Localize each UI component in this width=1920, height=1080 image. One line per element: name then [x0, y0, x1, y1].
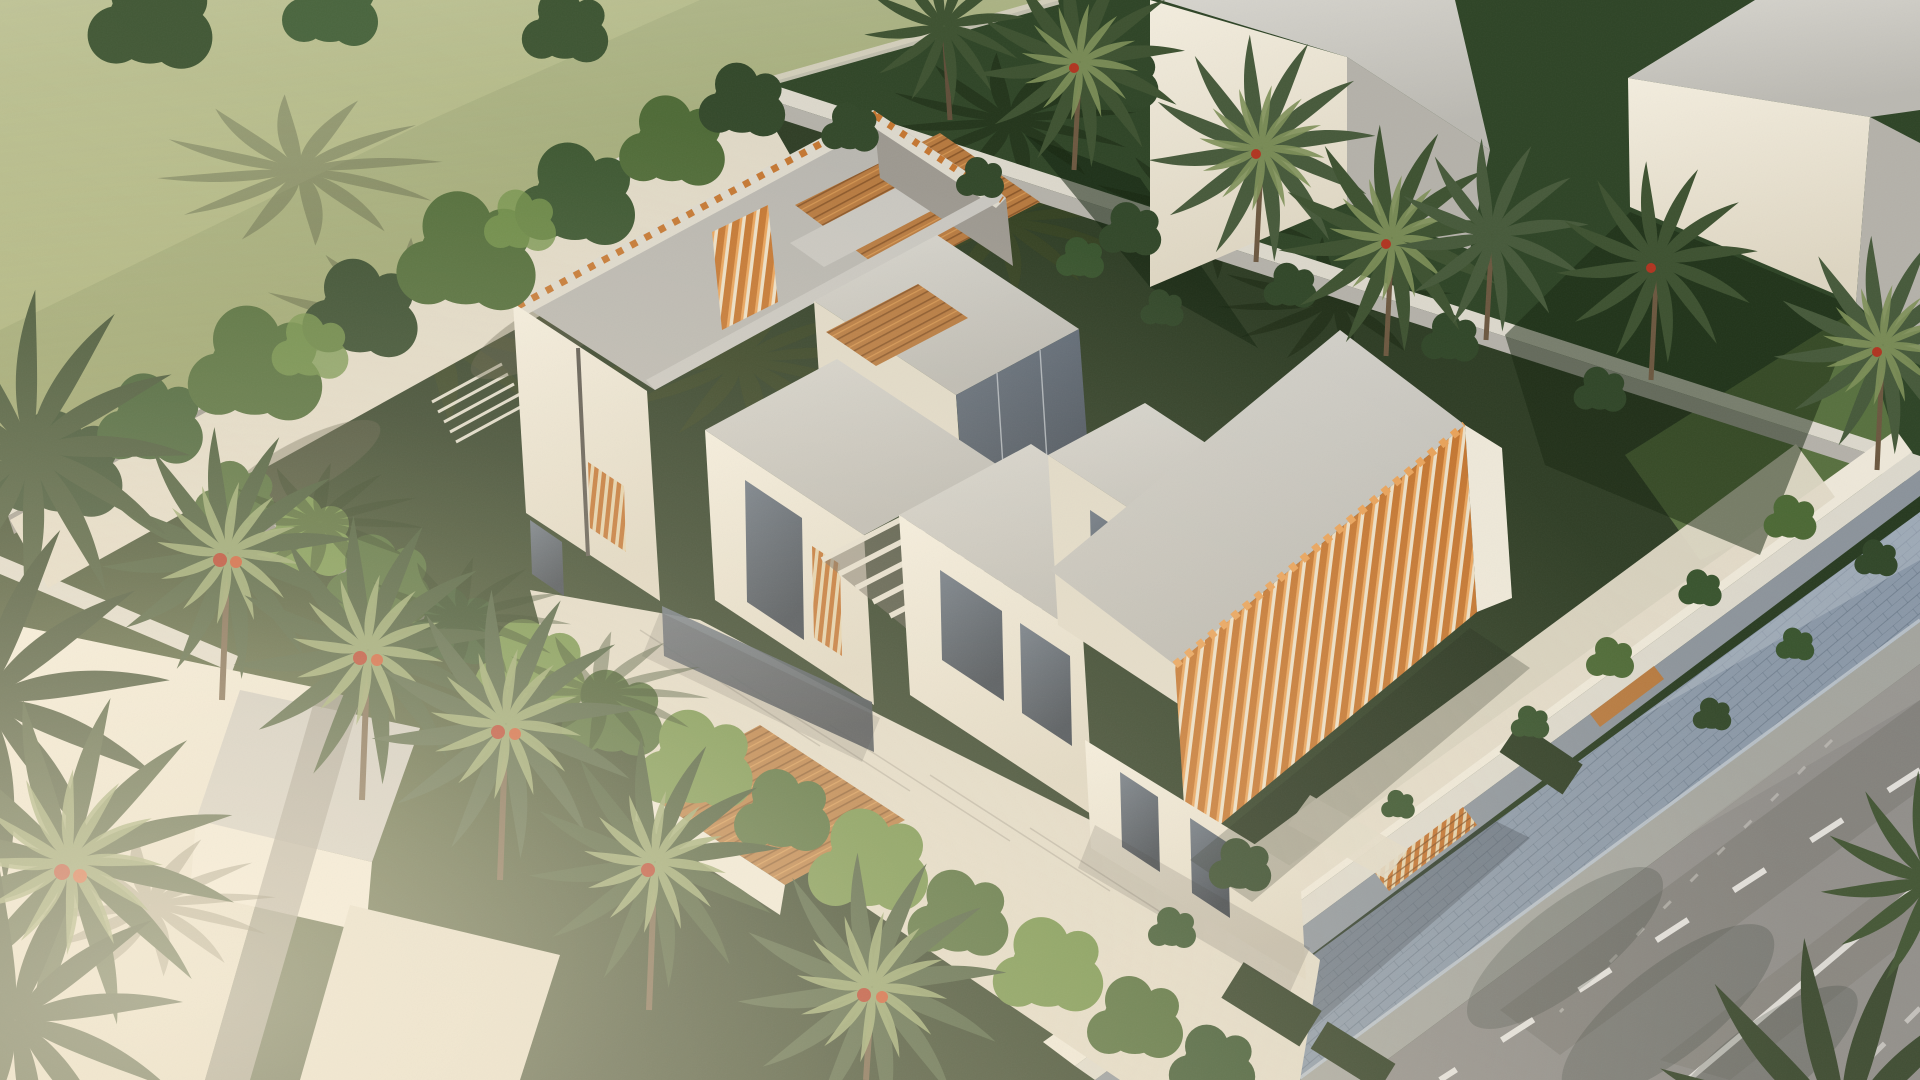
atmosphere — [0, 0, 1920, 1080]
render-canvas — [0, 0, 1920, 1080]
aerial-architectural-render — [0, 0, 1920, 1080]
film-grain — [0, 0, 1920, 1080]
